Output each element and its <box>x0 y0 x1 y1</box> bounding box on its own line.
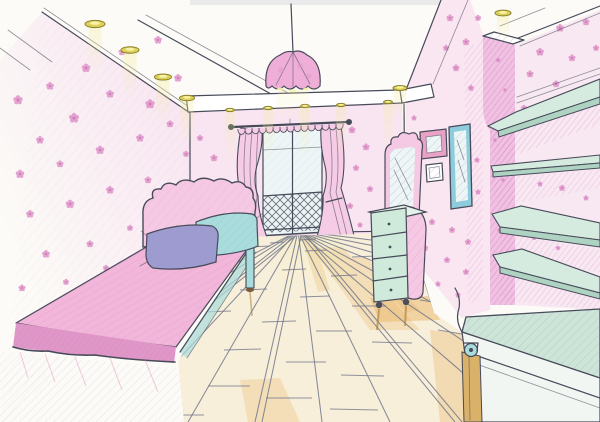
spotlight-highlight <box>397 86 404 88</box>
spotlight-highlight <box>499 11 507 14</box>
spotlight-beam <box>394 88 406 116</box>
lamp-glow <box>272 90 314 122</box>
spotlight-beam <box>497 13 509 41</box>
drawer-knob <box>390 289 393 292</box>
spotlight-highlight <box>266 107 271 109</box>
spotlight-beam <box>157 77 170 123</box>
spotlight-highlight <box>183 96 191 99</box>
drawer-knob <box>388 223 391 226</box>
ceiling-top-smudge <box>190 0 440 5</box>
drawer-knob <box>389 268 392 271</box>
spotlight-highlight <box>126 48 135 51</box>
spotlight-beam <box>225 110 235 162</box>
sketch-canvas <box>0 0 600 422</box>
spotlight-beam <box>263 108 273 160</box>
spotlight-beam <box>124 50 137 96</box>
dresser-caster <box>403 299 409 305</box>
spotlight-highlight <box>386 101 391 103</box>
spotlight-beam <box>89 24 102 70</box>
rod-finial-right <box>346 119 352 125</box>
spotlight-highlight <box>90 22 100 25</box>
spotlight-highlight <box>159 75 168 78</box>
bed-post-foot <box>246 288 254 292</box>
bench-leg-block <box>462 352 482 422</box>
drawer-knob <box>389 246 392 249</box>
spotlight-highlight <box>339 104 344 106</box>
bed-post <box>246 244 254 288</box>
spotlight-beam <box>181 98 194 144</box>
dresser-caster <box>376 302 382 308</box>
bedroom-sketch <box>0 0 600 422</box>
spotlight-highlight <box>228 109 233 111</box>
spotlight-beam <box>336 105 346 157</box>
